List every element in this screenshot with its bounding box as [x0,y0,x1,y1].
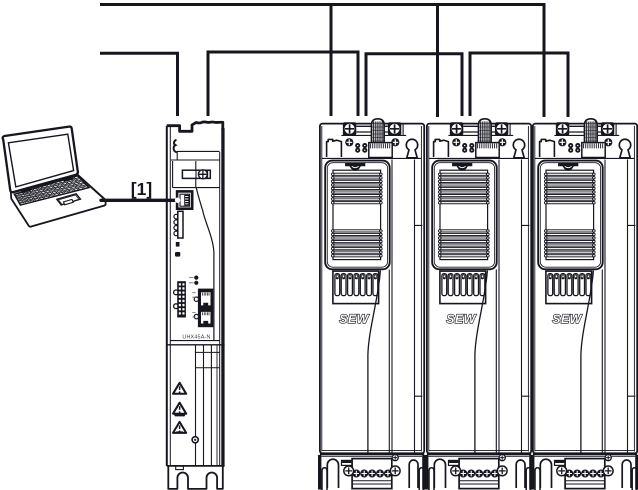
svg-text:UHX45A-N: UHX45A-N [182,334,210,340]
svg-text:[1]: [1] [131,179,152,199]
